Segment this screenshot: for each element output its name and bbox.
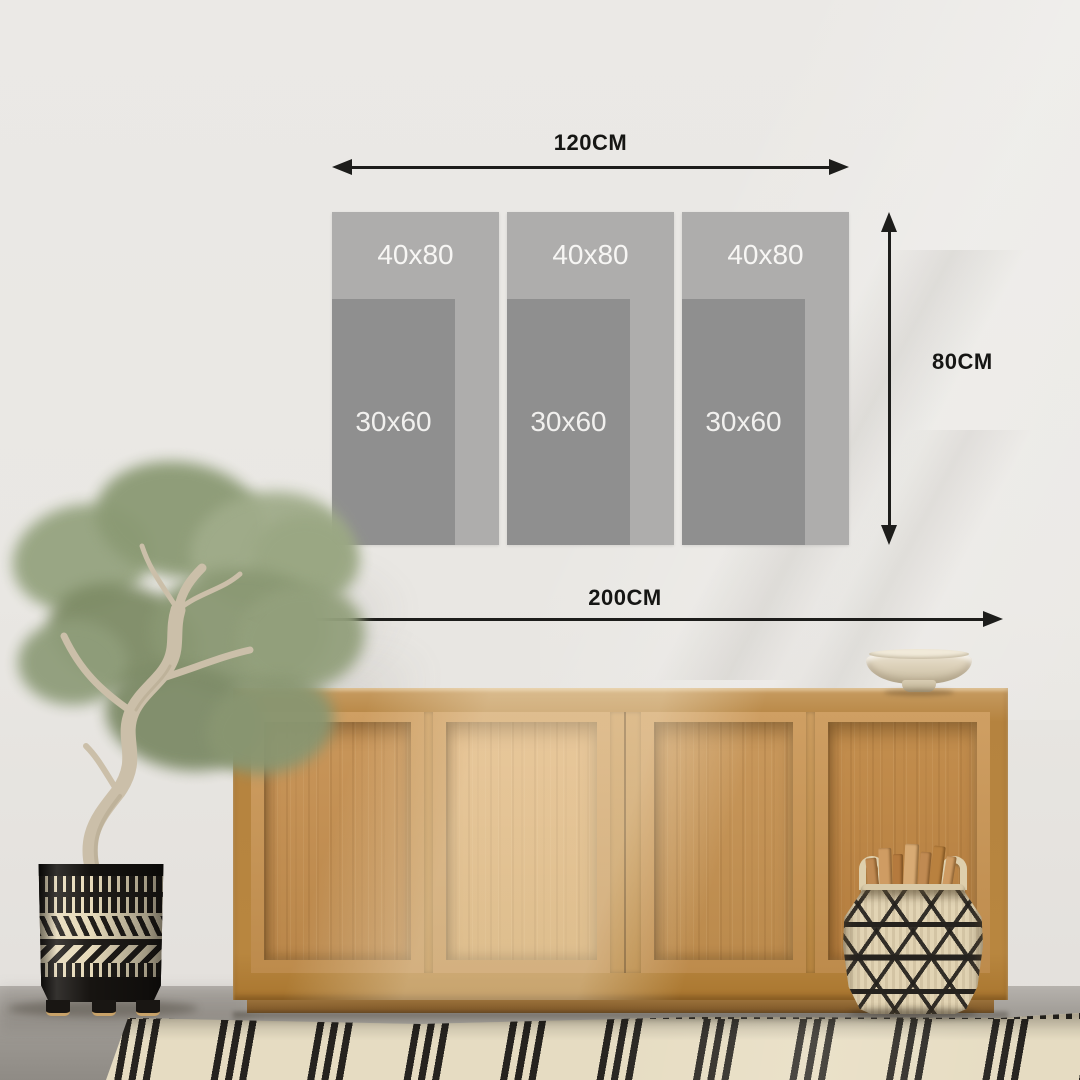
bowl-foot [902, 680, 936, 692]
basket-body [843, 890, 983, 1014]
pot-pattern-band [36, 936, 166, 939]
inner-size-label: 30x60 [682, 405, 805, 439]
storage-basket [843, 856, 983, 1014]
height-dimension-arrow [881, 212, 897, 545]
size-panel-30x60-center: 30x60 [507, 299, 630, 545]
arrowhead-down-icon [881, 525, 897, 545]
pot-foot [46, 1000, 70, 1016]
width-dimension-arrow [332, 159, 849, 175]
size-panel-40x80-center: 30x60 40x80 [507, 212, 674, 545]
pot-pattern-band [36, 939, 166, 945]
pot-pattern-band [36, 892, 166, 897]
inner-size-label: 30x60 [507, 405, 630, 439]
pot-pattern-band [36, 897, 166, 913]
outer-size-label: 40x80 [682, 238, 849, 272]
pot-pattern-band [36, 963, 166, 977]
total-width-dimension-arrow [247, 611, 1003, 627]
size-panel-30x60-right: 30x60 [682, 299, 805, 545]
pot-body [36, 864, 166, 1002]
height-dimension-label: 80CM [932, 349, 993, 375]
pot-foot [92, 1000, 116, 1016]
inner-size-label: 30x60 [332, 405, 455, 439]
pot-pattern-band [36, 876, 166, 892]
dimension-line [888, 226, 891, 531]
arrowhead-right-icon [829, 159, 849, 175]
pot-pattern-band [36, 913, 166, 916]
pot-pattern-band [36, 916, 166, 936]
size-panel-30x60-left: 30x60 [332, 299, 455, 545]
outer-size-label: 40x80 [332, 238, 499, 272]
bowl-body [866, 650, 972, 684]
dimension-line [346, 166, 835, 169]
sideboard-door [433, 712, 610, 973]
pot-foot [136, 1000, 160, 1016]
decorative-bowl [866, 648, 972, 694]
room-mockup-scene: 30x60 40x80 30x60 40x80 30x60 40x80 120C… [0, 0, 1080, 1080]
sideboard-door [641, 712, 806, 973]
dimension-line [261, 618, 989, 621]
pot-pattern-band [36, 977, 166, 1002]
door-divider [806, 712, 815, 973]
size-panel-40x80-left: 30x60 40x80 [332, 212, 499, 545]
door-divider [424, 712, 433, 973]
arrowhead-right-icon [983, 611, 1003, 627]
total-width-dimension-label: 200CM [247, 585, 1003, 611]
pot-pattern-band [36, 945, 166, 963]
door-panel [446, 722, 597, 960]
planter-pot [36, 864, 166, 1020]
door-panel [654, 722, 793, 960]
outer-size-label: 40x80 [507, 238, 674, 272]
width-dimension-label: 120CM [332, 130, 849, 156]
pot-pattern-band [36, 864, 166, 876]
size-panel-40x80-right: 30x60 40x80 [682, 212, 849, 545]
center-door-divider [610, 712, 641, 973]
